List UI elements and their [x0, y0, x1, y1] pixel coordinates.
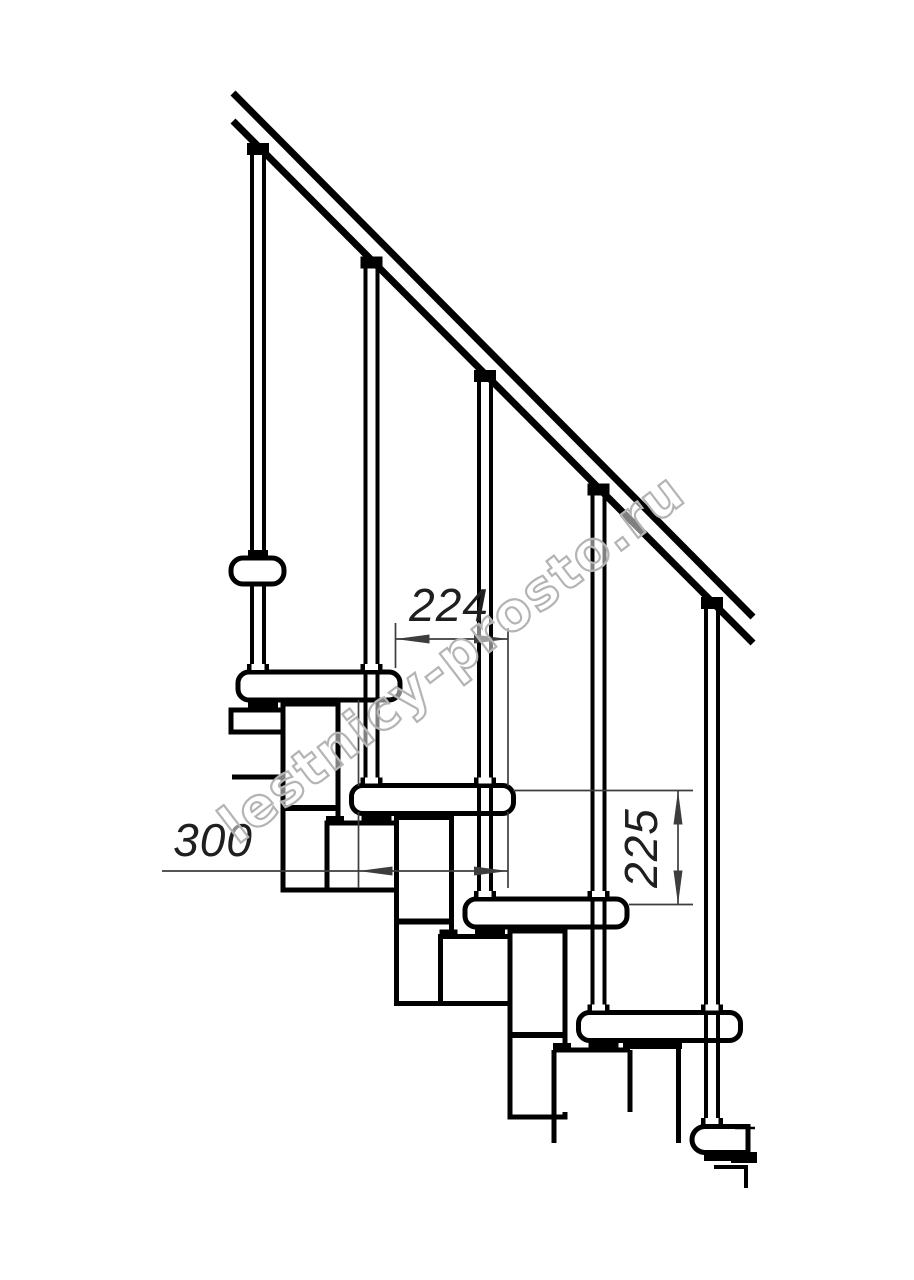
baluster-2-rail-cap — [361, 257, 383, 269]
baluster-1 — [247, 143, 269, 674]
collar-b1-t1 — [247, 664, 269, 673]
tread-5-bracket — [704, 1152, 734, 1161]
baluster-5-rail-cap — [701, 597, 723, 609]
module-4-sleeve-fill — [551, 1048, 633, 1112]
collar-b5-t5 — [701, 1118, 723, 1127]
collar-b4-t4 — [588, 1005, 610, 1014]
drawing-canvas: 224 300 225 lestnicy-prosto.ru — [0, 0, 914, 1280]
tread-4-bracket — [589, 1040, 619, 1049]
tread-2-bracket — [362, 813, 392, 822]
baluster-5 — [701, 597, 723, 1129]
collar-b3-t2 — [474, 778, 496, 787]
staircase-drawing: 224 300 225 lestnicy-prosto.ru — [0, 0, 914, 1280]
module-5-step-bracket — [731, 1152, 757, 1163]
dim-225-arrow-up-icon — [674, 791, 683, 825]
collar-b2-t2 — [361, 778, 383, 787]
tread-5 — [692, 1127, 748, 1153]
baluster-4-rail-cap — [588, 484, 610, 496]
tread-1-bracket — [248, 699, 278, 708]
module-2-sleeve — [327, 823, 403, 890]
module-3-sleeve — [441, 937, 517, 1004]
lower-rail-end-cap — [231, 558, 284, 584]
collar-b5-t4 — [701, 1005, 723, 1014]
collar-b4-t3 — [588, 891, 610, 900]
module-5-break-line — [714, 1167, 746, 1188]
tread-3-bracket — [475, 926, 505, 935]
baluster-3-rail-cap — [474, 370, 496, 382]
collar-b3-t3 — [474, 891, 496, 900]
dim-225-value: 225 — [615, 808, 667, 889]
collar-b2-t1 — [361, 664, 383, 673]
lower-rail-end — [231, 550, 284, 584]
landing-edge-box — [231, 710, 289, 732]
dim-225-arrow-down-icon — [674, 871, 683, 905]
